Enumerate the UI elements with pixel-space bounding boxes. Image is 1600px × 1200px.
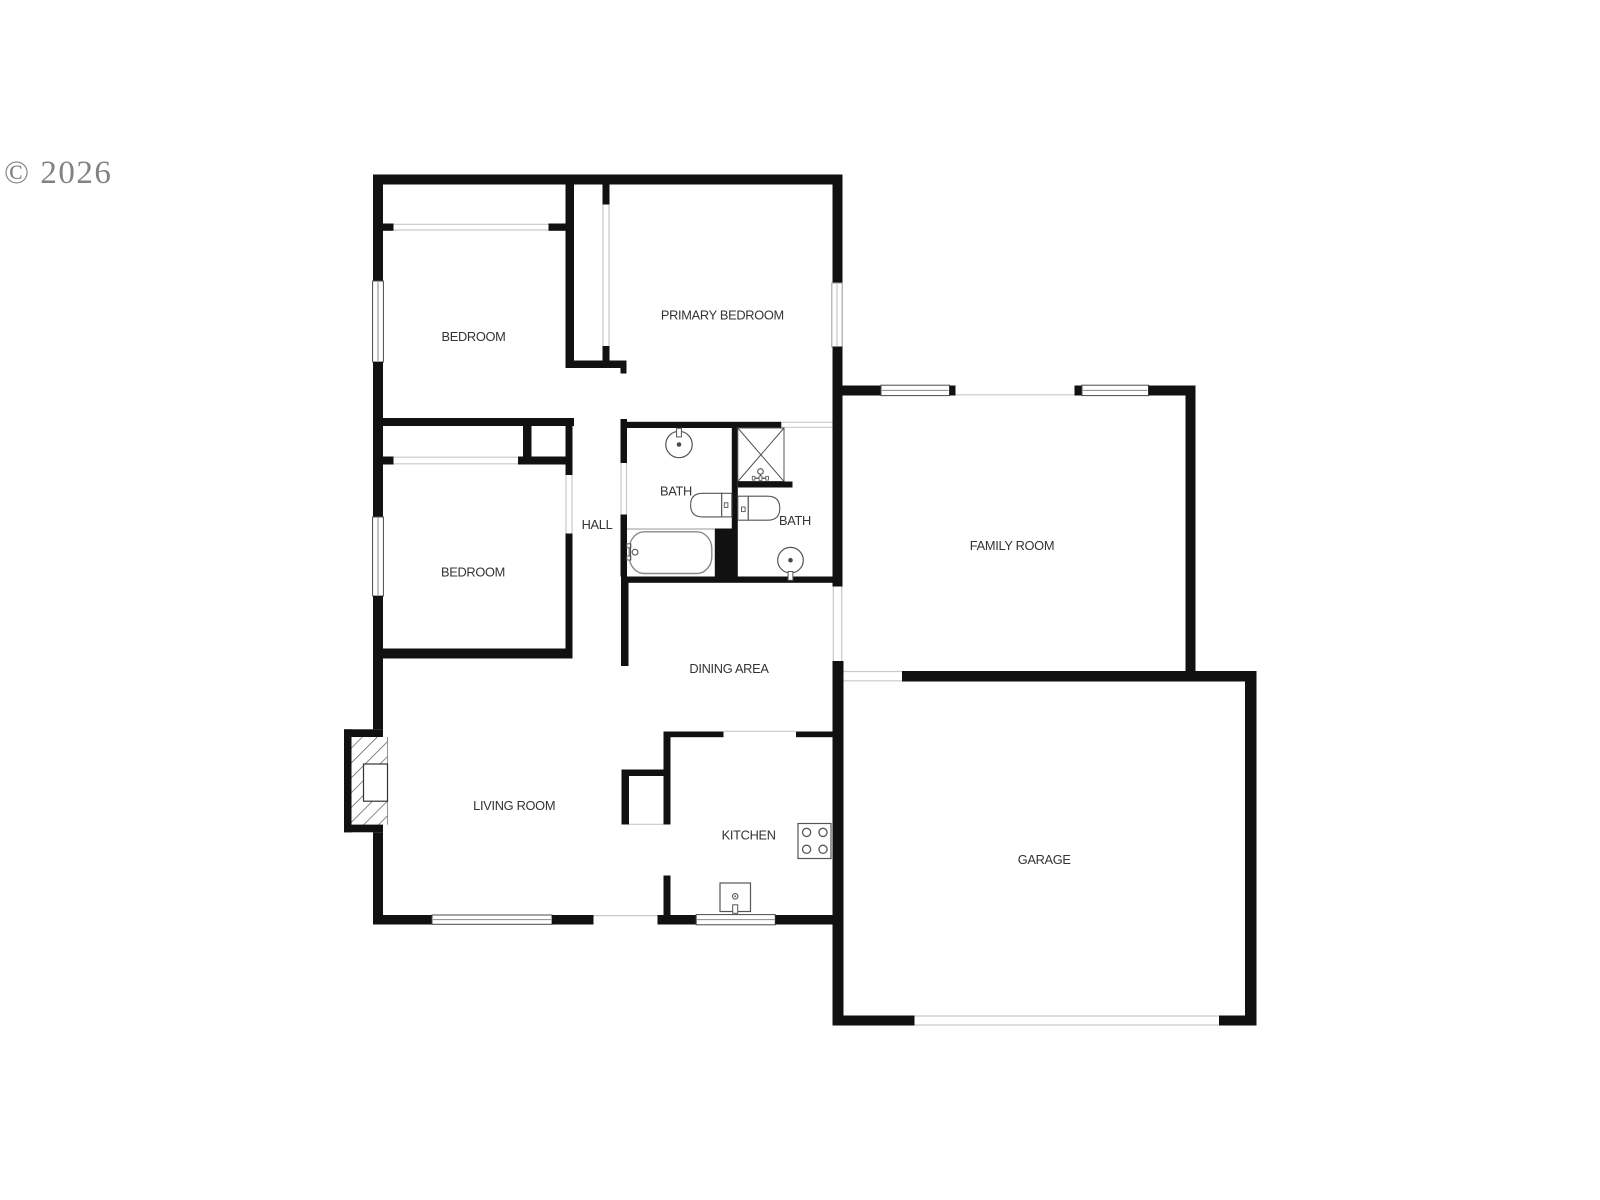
svg-text:KITCHEN: KITCHEN: [722, 827, 776, 842]
svg-text:BEDROOM: BEDROOM: [441, 564, 505, 579]
svg-text:BATH: BATH: [660, 483, 692, 498]
svg-text:DINING AREA: DINING AREA: [689, 661, 769, 676]
svg-text:FAMILY ROOM: FAMILY ROOM: [970, 538, 1054, 553]
svg-text:© 2026: © 2026: [4, 155, 112, 191]
svg-text:PRIMARY BEDROOM: PRIMARY BEDROOM: [661, 308, 784, 323]
svg-text:GARAGE: GARAGE: [1018, 852, 1071, 867]
svg-text:BATH: BATH: [779, 513, 811, 528]
svg-text:HALL: HALL: [582, 517, 613, 532]
svg-text:BEDROOM: BEDROOM: [441, 329, 505, 344]
svg-text:LIVING ROOM: LIVING ROOM: [473, 798, 555, 813]
